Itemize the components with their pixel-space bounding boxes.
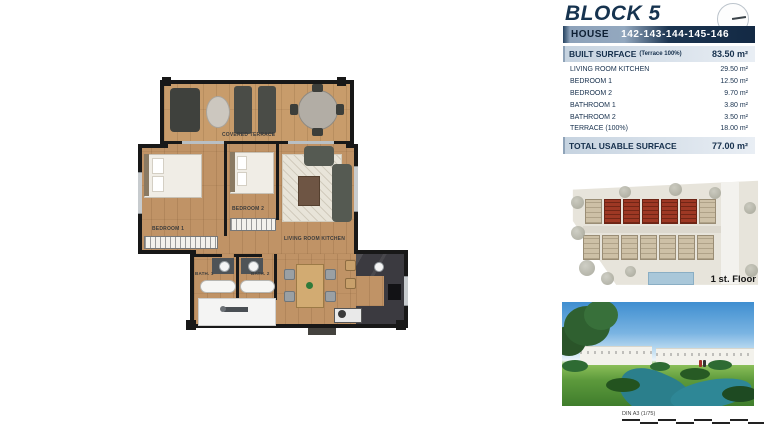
bedroom1-headboard [144, 154, 149, 196]
pillow [237, 172, 247, 186]
floor-caption: 1 st. Floor [711, 274, 756, 285]
wall [354, 250, 408, 254]
bush [708, 360, 732, 370]
site-unit-highlighted [661, 199, 678, 224]
pillar [337, 77, 346, 86]
site-unit [678, 235, 695, 260]
site-unit-highlighted [604, 199, 621, 224]
site-unit-highlighted [642, 199, 659, 224]
room-label-bath2: BATH. 2 [251, 271, 270, 276]
bedroom2-headboard [230, 152, 235, 192]
built-surface-value: 83.50 m² [712, 49, 748, 59]
wall [236, 257, 239, 301]
site-unit [640, 235, 657, 260]
pillar [186, 320, 196, 330]
building-photo [562, 302, 754, 406]
plant-centerpiece [306, 282, 313, 289]
bath2-tub [240, 280, 275, 293]
sun-lounger [258, 86, 276, 134]
site-unit [659, 235, 676, 260]
table-row: BATHROOM 2 3.50 m² [563, 111, 755, 123]
bush [722, 386, 754, 402]
terrace-chair [312, 128, 323, 136]
row-label: LIVING ROOM KITCHEN [570, 66, 649, 73]
sliding-door [182, 141, 224, 144]
wall [274, 254, 277, 300]
room-label-bedroom1: BEDROOM 1 [152, 226, 184, 232]
coffee-table [298, 176, 320, 206]
site-unit [699, 199, 716, 224]
wall [138, 144, 168, 148]
tree-icon [601, 272, 614, 285]
info-panel: BLOCK 5 HOUSE 142-143-144-145-146 BUILT … [563, 0, 763, 432]
table-row: LIVING ROOM KITCHEN 29.50 m² [563, 64, 755, 76]
table-row: BEDROOM 2 9.70 m² [563, 88, 755, 100]
room-label-covered-terrace: COVERED TERRACE [222, 132, 275, 138]
site-unit [583, 235, 600, 260]
kitchen-floor-notch [356, 276, 384, 306]
tree-icon [619, 186, 631, 198]
wall [138, 250, 196, 254]
dining-chair [284, 291, 295, 302]
bush [562, 360, 588, 372]
site-road [721, 182, 739, 284]
room-label-bedroom2: BEDROOM 2 [232, 206, 264, 212]
person [699, 360, 702, 367]
tree-icon [584, 302, 618, 330]
row-value: 3.80 m² [724, 102, 748, 109]
tree-icon [625, 266, 636, 277]
bedroom1-wardrobe [144, 236, 218, 249]
site-unit-highlighted [623, 199, 640, 224]
kitchen-stool [345, 278, 356, 289]
floor-plan: COVERED TERRACE BEDROOM 1 BEDROOM 2 LIVI… [138, 80, 412, 334]
site-pool [648, 272, 694, 285]
shower-fixture [224, 307, 248, 312]
shower-area [198, 298, 276, 326]
total-surface-value: 77.00 m² [712, 141, 748, 151]
compass-needle [732, 16, 746, 20]
window [404, 276, 408, 306]
site-unit-highlighted [680, 199, 697, 224]
wall [190, 254, 194, 328]
block-title: BLOCK 5 [565, 2, 661, 26]
sliding-door [288, 141, 334, 144]
total-surface-bar: TOTAL USABLE SURFACE 77.00 m² [563, 137, 755, 154]
armchair [304, 146, 334, 166]
wall [224, 144, 227, 236]
tree-icon [579, 260, 595, 276]
room-label-living: LIVING ROOM KITCHEN [284, 236, 345, 242]
kitchen-appliance [388, 284, 401, 300]
tree-icon [571, 226, 585, 240]
sun-lounger [234, 86, 252, 134]
bush [680, 368, 710, 380]
dining-chair [284, 269, 295, 280]
tree-icon [669, 183, 682, 196]
shower-knob [220, 306, 226, 312]
surface-rows: LIVING ROOM KITCHEN 29.50 m² BEDROOM 1 1… [563, 64, 755, 135]
table-row: TERRACE (100%) 18.00 m² [563, 123, 755, 135]
row-label: BATHROOM 1 [570, 102, 616, 109]
wall [276, 144, 279, 220]
wall [160, 80, 164, 144]
bath1-sink [219, 261, 230, 272]
pillow [152, 158, 164, 174]
row-label: BEDROOM 1 [570, 78, 612, 85]
site-unit [585, 199, 602, 224]
building-render [580, 346, 652, 365]
pillar [162, 77, 171, 86]
wall [194, 254, 222, 257]
kitchen-stool [345, 260, 356, 271]
room-label-bath1: BATH. 1 [195, 271, 214, 276]
scale-bar [622, 419, 764, 424]
pillow [237, 156, 247, 170]
terrace-sofa [170, 88, 200, 132]
tree-icon [709, 187, 721, 199]
site-unit [621, 235, 638, 260]
row-value: 12.50 m² [720, 78, 748, 85]
terrace-chair [312, 84, 323, 92]
house-numbers: 142-143-144-145-146 [621, 29, 729, 40]
tree-icon [571, 196, 584, 209]
pillow [152, 176, 164, 192]
total-surface-label: TOTAL USABLE SURFACE [569, 141, 677, 151]
house-label: HOUSE [571, 29, 609, 40]
site-path [583, 226, 721, 233]
wall [350, 80, 354, 144]
row-label: BATHROOM 2 [570, 114, 616, 121]
pillar [396, 320, 406, 330]
oven-burner [338, 310, 346, 318]
bedroom2-wardrobe [230, 218, 276, 231]
dining-chair [325, 291, 336, 302]
row-value: 18.00 m² [720, 125, 748, 132]
entry-mat [308, 328, 336, 335]
built-surface-sublabel: (Terrace 100%) [639, 51, 681, 57]
built-surface-label: BUILT SURFACE [569, 49, 636, 59]
terrace-round-table [298, 90, 338, 130]
site-unit [602, 235, 619, 260]
bath1-tub [200, 280, 236, 293]
kitchen-sink [374, 262, 384, 272]
scale-label: DIN A3 (1/75) [622, 411, 655, 417]
table-row: BEDROOM 1 12.50 m² [563, 76, 755, 88]
row-value: 29.50 m² [720, 66, 748, 73]
house-bar: HOUSE 142-143-144-145-146 [563, 26, 755, 43]
row-label: TERRACE (100%) [570, 125, 628, 132]
row-value: 3.50 m² [724, 114, 748, 121]
terrace-side-table [206, 96, 230, 128]
bush [606, 378, 640, 392]
site-plan: 1 st. Floor [563, 174, 760, 290]
row-value: 9.70 m² [724, 90, 748, 97]
living-sofa [332, 164, 352, 222]
row-label: BEDROOM 2 [570, 90, 612, 97]
wall [160, 80, 354, 84]
terrace-chair [336, 104, 344, 115]
person [703, 360, 706, 367]
table-row: BATHROOM 1 3.80 m² [563, 99, 755, 111]
window [138, 172, 142, 214]
terrace-chair [290, 104, 298, 115]
built-surface-bar: BUILT SURFACE (Terrace 100%) 83.50 m² [563, 46, 755, 62]
dining-chair [325, 269, 336, 280]
site-unit [697, 235, 714, 260]
window [354, 166, 358, 212]
tree-icon [744, 202, 756, 214]
